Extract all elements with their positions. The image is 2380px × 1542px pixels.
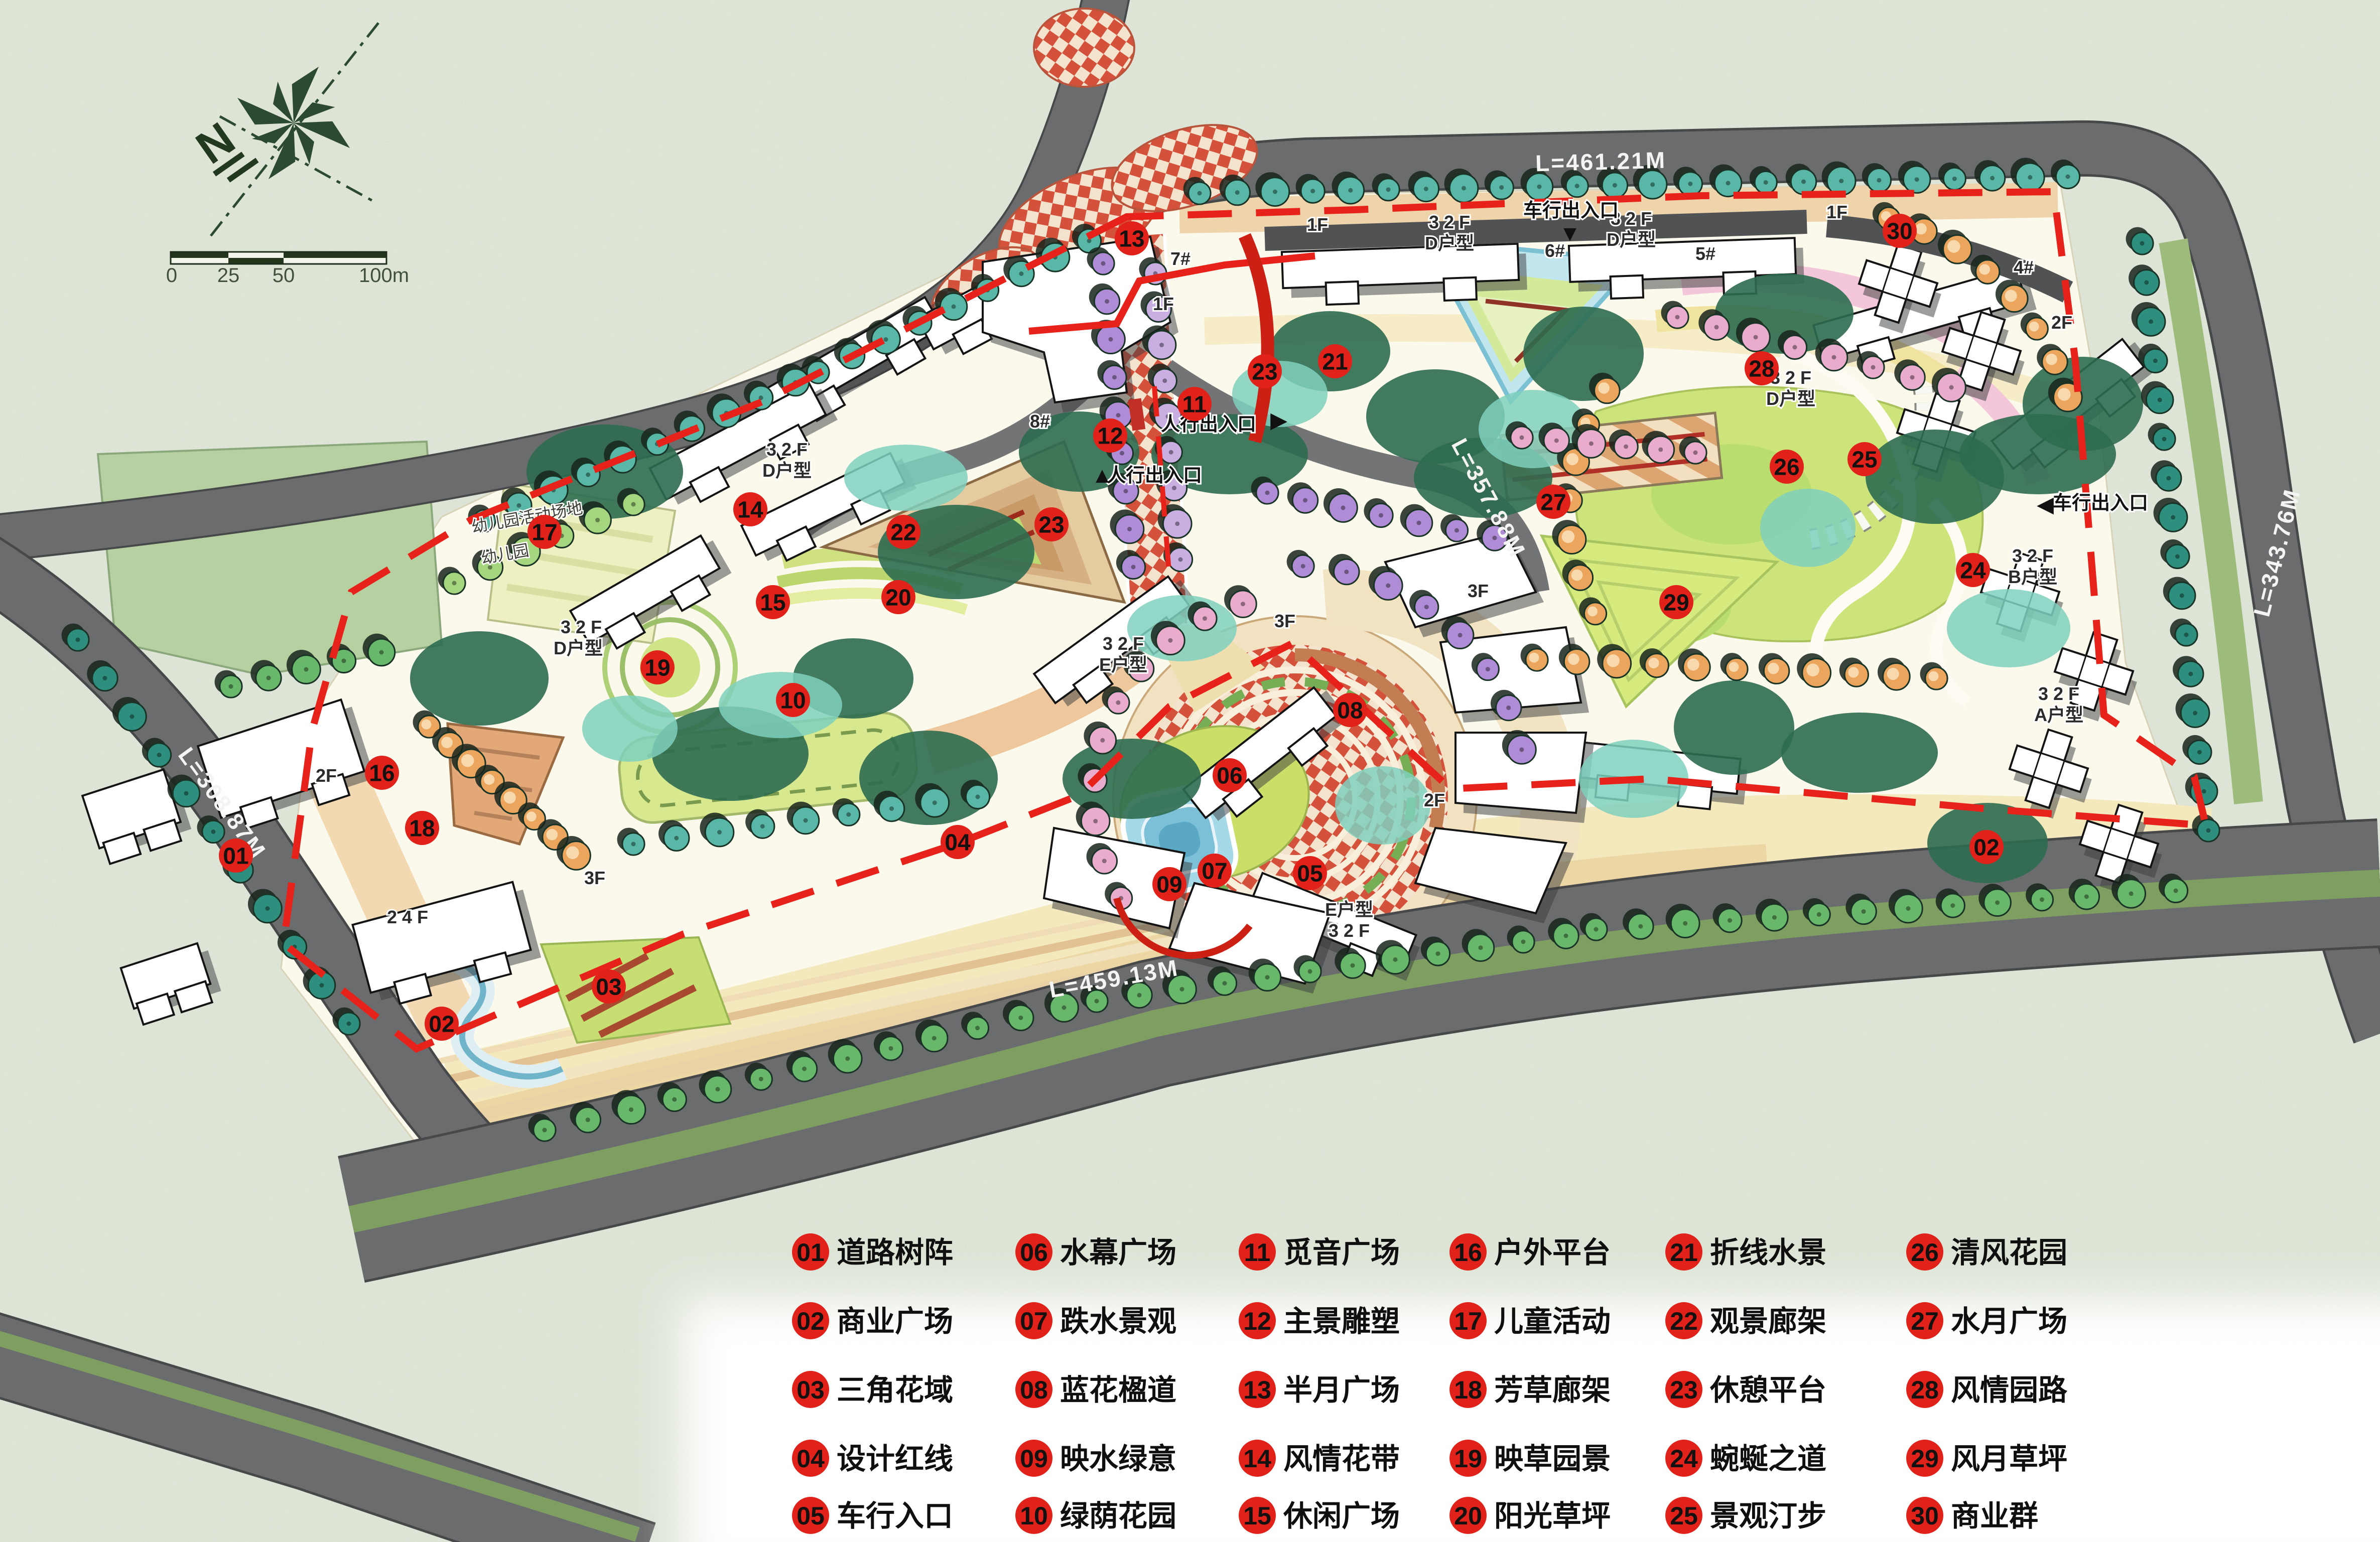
- legend-number: 30: [1911, 1502, 1939, 1530]
- legend-label: 半月广场: [1283, 1374, 1400, 1407]
- legend-number: 21: [1670, 1238, 1698, 1267]
- tree-canopy-dark: [410, 631, 549, 726]
- plan-marker-23: 23: [1034, 507, 1069, 541]
- plan-marker-28: 28: [1745, 351, 1779, 385]
- plan-marker-23: 23: [1248, 354, 1282, 388]
- plan-marker-27: 27: [1536, 485, 1570, 519]
- plan-marker-number: 29: [1663, 590, 1689, 616]
- plan-marker-02: 02: [1969, 830, 2004, 864]
- building-label: 3F: [1274, 611, 1295, 631]
- legend-number: 26: [1911, 1238, 1939, 1267]
- plan-marker-number: 16: [369, 760, 394, 786]
- entrance-arrow-icon: ▶: [1270, 408, 1287, 433]
- legend-number: 05: [797, 1502, 825, 1530]
- tree-canopy-teal: [1947, 589, 2070, 667]
- plan-marker-number: 01: [223, 843, 248, 869]
- legend-label: 景观汀步: [1710, 1500, 1826, 1532]
- building-label: 2F: [316, 765, 337, 786]
- legend-label: 三角花域: [837, 1374, 953, 1407]
- legend-number: 24: [1670, 1445, 1698, 1473]
- legend-number: 14: [1243, 1445, 1271, 1473]
- plan-marker-number: 23: [1252, 359, 1277, 385]
- building-label: 3F: [1468, 581, 1489, 601]
- plan-marker-number: 17: [532, 519, 557, 545]
- scale-tick-label: 100m: [359, 264, 409, 287]
- tree-canopy-teal: [844, 445, 968, 511]
- tree-canopy-teal: [1760, 489, 1856, 567]
- scale-tick-label: 0: [166, 264, 177, 287]
- legend-number: 23: [1670, 1376, 1698, 1404]
- plan-marker-15: 15: [756, 585, 790, 619]
- legend-number: 06: [1020, 1238, 1048, 1267]
- tree-canopy-teal: [582, 695, 678, 762]
- plan-marker-number: 24: [1960, 557, 1986, 584]
- legend-label: 观景廊架: [1710, 1305, 1826, 1338]
- plan-marker-number: 02: [1973, 834, 1999, 861]
- legend-number: 16: [1454, 1238, 1482, 1267]
- plan-marker-number: 10: [780, 687, 806, 714]
- entrance-label: 人行出入口: [1161, 414, 1256, 435]
- legend-item-20: 20阳光草坪: [1449, 1497, 1611, 1534]
- legend-item-23: 23休憩平台: [1665, 1371, 1826, 1408]
- legend-label: 蓝花楹道: [1060, 1374, 1176, 1407]
- legend-number: 20: [1454, 1502, 1482, 1530]
- building-label: D户型: [1607, 229, 1656, 250]
- plan-marker-number: 20: [885, 585, 911, 611]
- plan-marker-03: 03: [592, 969, 626, 1004]
- building-label: 7#: [1170, 248, 1191, 269]
- plan-marker-01: 01: [219, 838, 253, 873]
- plan-marker-number: 08: [1337, 697, 1363, 724]
- legend-label: 风情花带: [1283, 1443, 1400, 1475]
- legend-number: 09: [1020, 1445, 1048, 1473]
- plan-marker-17: 17: [527, 515, 562, 549]
- legend-label: 休憩平台: [1709, 1374, 1826, 1407]
- plan-marker-30: 30: [1883, 214, 1917, 248]
- building-label: B户型: [2008, 567, 2057, 587]
- legend-number: 01: [797, 1238, 825, 1267]
- tree-canopy-teal: [1335, 766, 1430, 845]
- plan-marker-number: 06: [1217, 763, 1242, 789]
- legend-item-15: 15休闲广场: [1239, 1497, 1400, 1534]
- legend-item-11: 11觅音广场: [1239, 1233, 1400, 1271]
- entrance-arrow-icon: ▼: [1559, 221, 1581, 246]
- legend-item-09: 09映水绿意: [1015, 1440, 1176, 1477]
- entrance-arrow-icon: ◀: [2037, 492, 2054, 517]
- plan-marker-07: 07: [1198, 854, 1232, 888]
- legend-number: 29: [1911, 1445, 1939, 1473]
- building-label: 3 2 F: [1329, 920, 1370, 941]
- plan-marker-04: 04: [941, 825, 975, 859]
- legend-item-13: 13半月广场: [1239, 1371, 1400, 1408]
- building-label: 5#: [1695, 243, 1715, 264]
- plan-marker-number: 13: [1119, 226, 1144, 252]
- building-label: 3 2 F: [561, 617, 602, 637]
- legend-number: 10: [1020, 1502, 1048, 1530]
- plan-marker-number: 15: [760, 590, 785, 616]
- legend-label: 芳草廊架: [1494, 1374, 1611, 1407]
- building-label: A户型: [2034, 705, 2083, 725]
- legend-item-28: 28风情园路: [1906, 1371, 2068, 1408]
- legend-number: 15: [1243, 1502, 1271, 1530]
- legend-number: 03: [797, 1376, 825, 1404]
- legend-item-19: 19映草园景: [1449, 1440, 1611, 1477]
- legend-label: 映水绿意: [1060, 1443, 1176, 1475]
- legend-item-25: 25景观汀步: [1665, 1497, 1826, 1534]
- plan-marker-26: 26: [1770, 450, 1804, 484]
- legend-number: 18: [1454, 1376, 1482, 1404]
- plan-marker-number: 30: [1887, 218, 1912, 244]
- legend-number: 08: [1020, 1376, 1048, 1404]
- plan-marker-02: 02: [425, 1007, 459, 1041]
- legend-label: 风月草坪: [1951, 1443, 2067, 1475]
- entrance-label: 车行出入口: [1523, 200, 1619, 221]
- legend-item-02: 02商业广场: [792, 1302, 953, 1339]
- plan-marker-18: 18: [405, 811, 439, 845]
- legend-item-24: 24蜿蜒之道: [1665, 1440, 1826, 1477]
- legend-number: 19: [1454, 1445, 1482, 1473]
- plan-marker-09: 09: [1152, 867, 1186, 901]
- building-label: 8#: [1030, 411, 1050, 432]
- legend-item-07: 07跌水景观: [1015, 1302, 1176, 1339]
- legend-number: 28: [1911, 1376, 1939, 1404]
- road-length-label: L=461.21M: [1535, 147, 1666, 177]
- legend-item-10: 10绿荫花园: [1015, 1497, 1176, 1534]
- building-label: 3 2 F: [2012, 545, 2053, 566]
- plan-marker-22: 22: [886, 515, 920, 549]
- entrance-label: 人行出入口: [1107, 465, 1202, 486]
- legend-label: 折线水景: [1710, 1236, 1826, 1269]
- building-label: 3 2 F: [1429, 212, 1470, 232]
- legend-item-05: 05车行入口: [792, 1497, 953, 1534]
- legend-label: 蜿蜒之道: [1710, 1443, 1826, 1475]
- legend-item-04: 04设计红线: [792, 1440, 953, 1477]
- building-label: D户型: [554, 638, 603, 658]
- plan-marker-25: 25: [1847, 442, 1882, 476]
- legend-number: 13: [1243, 1376, 1271, 1404]
- building-label: E户型: [1325, 899, 1373, 920]
- site-plan-drawing: L=461.21ML=343.76ML=459.13ML=308.87ML=35…: [0, 0, 2380, 1542]
- plan-marker-number: 03: [596, 974, 621, 1000]
- entrance-label: 车行出入口: [2053, 493, 2148, 514]
- legend-number: 17: [1454, 1307, 1482, 1335]
- site-plan-page: L=461.21ML=343.76ML=459.13ML=308.87ML=35…: [0, 0, 2380, 1542]
- legend-item-03: 03三角花域: [792, 1371, 953, 1408]
- plan-marker-06: 06: [1213, 758, 1247, 792]
- plan-marker-10: 10: [776, 683, 810, 717]
- legend-item-17: 17儿童活动: [1449, 1302, 1611, 1339]
- plan-marker-number: 23: [1038, 512, 1064, 538]
- building-label: 1F: [1153, 294, 1174, 314]
- building-label: 2 4 F: [387, 907, 428, 927]
- plan-marker-number: 22: [890, 519, 916, 545]
- legend-label: 清风花园: [1951, 1236, 2067, 1269]
- legend-item-26: 26清风花园: [1906, 1233, 2067, 1271]
- legend-label: 主景雕塑: [1283, 1305, 1400, 1338]
- building-label: 3 2 F: [766, 439, 808, 460]
- legend-label: 设计红线: [837, 1443, 953, 1475]
- plan-marker-05: 05: [1293, 856, 1327, 890]
- legend-item-29: 29风月草坪: [1906, 1440, 2067, 1477]
- legend-item-22: 22观景廊架: [1665, 1302, 1826, 1339]
- legend-label: 商业广场: [837, 1305, 953, 1338]
- legend-item-01: 01道路树阵: [792, 1233, 953, 1271]
- legend-item-06: 06水幕广场: [1015, 1233, 1176, 1271]
- legend-number: 04: [797, 1445, 825, 1473]
- legend-number: 25: [1670, 1502, 1698, 1530]
- legend-number: 07: [1020, 1307, 1048, 1335]
- plan-marker-number: 21: [1322, 349, 1348, 375]
- plan-marker-number: 12: [1097, 423, 1123, 449]
- legend-item-12: 12主景雕塑: [1239, 1302, 1400, 1339]
- plan-marker-number: 14: [737, 497, 763, 523]
- legend-item-14: 14风情花带: [1239, 1440, 1400, 1477]
- legend-number: 02: [797, 1307, 825, 1335]
- plan-marker-number: 11: [1182, 391, 1207, 417]
- legend-label: 映草园景: [1494, 1443, 1611, 1475]
- plan-marker-number: 04: [945, 829, 971, 856]
- plan-marker-11: 11: [1177, 387, 1212, 421]
- plan-marker-16: 16: [365, 756, 399, 790]
- plan-marker-number: 05: [1297, 861, 1323, 887]
- building-label: 3F: [584, 868, 605, 888]
- legend-item-27: 27水月广场: [1906, 1302, 2067, 1339]
- legend-number: 22: [1670, 1307, 1698, 1335]
- plan-marker-14: 14: [733, 492, 767, 526]
- scale-tick-label: 25: [217, 264, 240, 287]
- plan-marker-12: 12: [1093, 418, 1127, 453]
- plan-marker-number: 25: [1852, 447, 1877, 473]
- building-label: 2F: [2051, 312, 2072, 333]
- legend-item-21: 21折线水景: [1665, 1233, 1826, 1271]
- legend-item-30: 30商业群: [1906, 1497, 2038, 1534]
- plan-marker-number: 19: [644, 655, 670, 681]
- legend-label: 道路树阵: [837, 1236, 953, 1269]
- tree-canopy-dark: [1523, 307, 1644, 401]
- plan-marker-19: 19: [640, 650, 675, 684]
- building-label: 4#: [2014, 257, 2034, 277]
- plan-marker-20: 20: [881, 580, 915, 614]
- legend-label: 休闲广场: [1283, 1500, 1400, 1532]
- legend-number: 12: [1243, 1307, 1271, 1335]
- plan-marker-08: 08: [1333, 693, 1367, 727]
- plan-marker-13: 13: [1115, 221, 1149, 255]
- legend-label: 水幕广场: [1060, 1236, 1176, 1269]
- tree-canopy-dark: [1674, 680, 1794, 775]
- legend-label: 觅音广场: [1283, 1236, 1400, 1269]
- legend-label: 车行入口: [837, 1500, 953, 1532]
- scale-tick-label: 50: [273, 264, 295, 287]
- legend-label: 跌水景观: [1060, 1305, 1176, 1338]
- plan-marker-number: 27: [1540, 489, 1566, 515]
- plan-marker-number: 02: [429, 1011, 454, 1037]
- building-label: 1F: [1826, 202, 1847, 222]
- plan-marker-number: 09: [1156, 872, 1182, 898]
- legend-item-16: 16户外平台: [1449, 1233, 1611, 1271]
- building-label: 1F: [1307, 214, 1328, 235]
- building-label: D户型: [1425, 233, 1474, 253]
- legend-label: 水月广场: [1951, 1305, 2067, 1338]
- legend-item-08: 08蓝花楹道: [1015, 1371, 1176, 1408]
- legend-label: 绿荫花园: [1060, 1500, 1176, 1532]
- plan-marker-29: 29: [1659, 585, 1693, 619]
- legend-number: 11: [1244, 1238, 1271, 1267]
- plan-marker-number: 28: [1749, 356, 1774, 382]
- plan-marker-21: 21: [1318, 344, 1352, 378]
- legend-label: 风情园路: [1951, 1374, 2068, 1407]
- building-label: D户型: [1766, 388, 1815, 409]
- building-label: 2F: [1424, 790, 1445, 810]
- building-label: E户型: [1099, 654, 1147, 675]
- legend-label: 户外平台: [1494, 1236, 1611, 1269]
- entrance-arrow-icon: ▲: [1091, 463, 1113, 488]
- legend-label: 儿童活动: [1494, 1305, 1611, 1338]
- legend-label: 阳光草坪: [1494, 1500, 1611, 1532]
- plan-marker-number: 07: [1202, 858, 1227, 884]
- plan-marker-number: 18: [409, 815, 435, 842]
- legend-item-18: 18芳草廊架: [1449, 1371, 1611, 1408]
- legend-number: 27: [1911, 1307, 1939, 1335]
- tree-canopy-dark: [1781, 713, 1938, 793]
- legend-label: 商业群: [1951, 1500, 2038, 1532]
- building-label: 3 2 F: [2038, 683, 2079, 704]
- building-label: D户型: [762, 460, 812, 481]
- building-label: 3 2 F: [1103, 633, 1144, 654]
- plan-marker-24: 24: [1956, 553, 1990, 587]
- plan-marker-number: 26: [1774, 454, 1799, 480]
